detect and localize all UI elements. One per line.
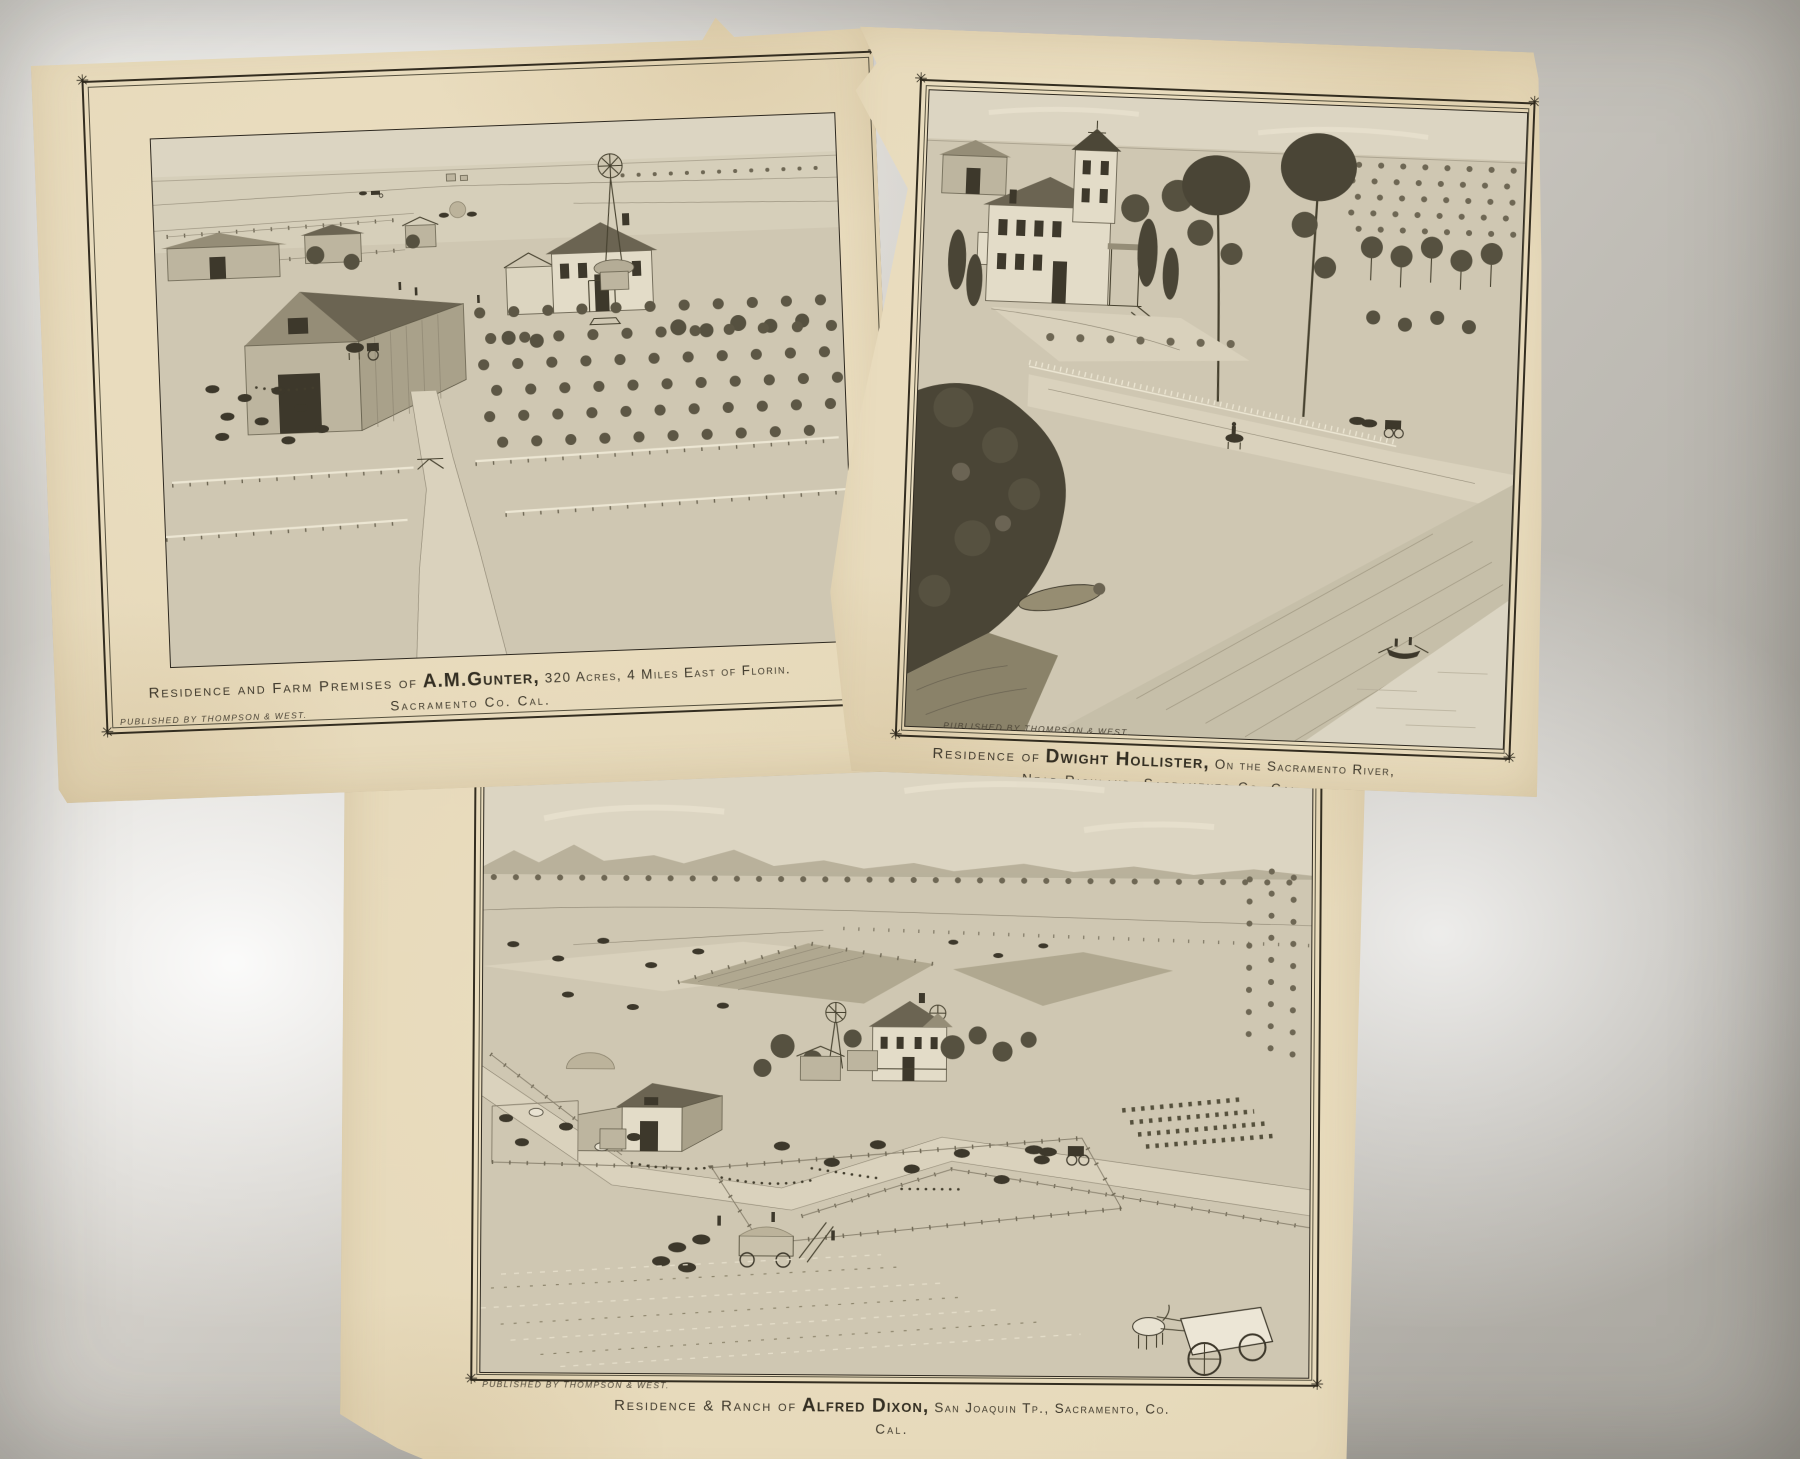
corner-star-ornament-icon: ✳ (1528, 95, 1542, 112)
corner-star-ornament-icon: ✳ (464, 1372, 478, 1388)
caption-detail: San Joaquin Tp., Sacramento, Co. (934, 1400, 1170, 1417)
corner-star-ornament-icon: ✳ (889, 727, 903, 744)
lithograph-illustration-hollister-residence (904, 89, 1528, 750)
caption-detail: 320 Acres, 4 Miles East of Florin. (544, 661, 791, 685)
caption-line2: Cal. (470, 1419, 1314, 1440)
lithograph-illustration-gunter-farm (150, 112, 856, 668)
corner-star-ornament-icon: ✳ (914, 72, 928, 89)
print-sheet-dixon: ✳ ✳ ✳ ✳ (339, 700, 1366, 1459)
caption-subject: Alfred Dixon, (802, 1395, 930, 1417)
caption-line1: Residence & Ranch ofAlfred Dixon,San Joa… (470, 1393, 1314, 1421)
print-sheet-hollister: ✳ ✳ ✳ ✳ (817, 26, 1565, 797)
caption-prefix: Residence of (932, 745, 1041, 766)
photo-of-lithograph-prints: ✳ ✳ ✳ ✳ (0, 0, 1800, 1459)
print-border-frame: ✳ ✳ ✳ ✳ (895, 79, 1536, 760)
print-border-frame: ✳ ✳ ✳ ✳ (470, 705, 1323, 1387)
caption-subject: A.M.Gunter, (422, 667, 540, 692)
print-border-frame: ✳ ✳ ✳ ✳ (81, 51, 900, 735)
publisher-credit: Published by Thompson & West. (482, 1379, 670, 1390)
corner-star-ornament-icon: ✳ (101, 725, 115, 742)
corner-star-ornament-icon: ✳ (1502, 751, 1516, 768)
lithograph-illustration-dixon-ranch (479, 713, 1314, 1379)
print-caption-dixon: Residence & Ranch ofAlfred Dixon,San Joa… (470, 1393, 1314, 1440)
print-sheet-gunter: ✳ ✳ ✳ ✳ (30, 12, 901, 804)
corner-star-ornament-icon: ✳ (1310, 1378, 1324, 1394)
caption-subject: Dwight Hollister, (1045, 746, 1210, 773)
corner-star-ornament-icon: ✳ (75, 74, 89, 91)
caption-detail: On the Sacramento River, (1215, 757, 1396, 779)
caption-prefix: Residence & Ranch of (614, 1397, 797, 1415)
